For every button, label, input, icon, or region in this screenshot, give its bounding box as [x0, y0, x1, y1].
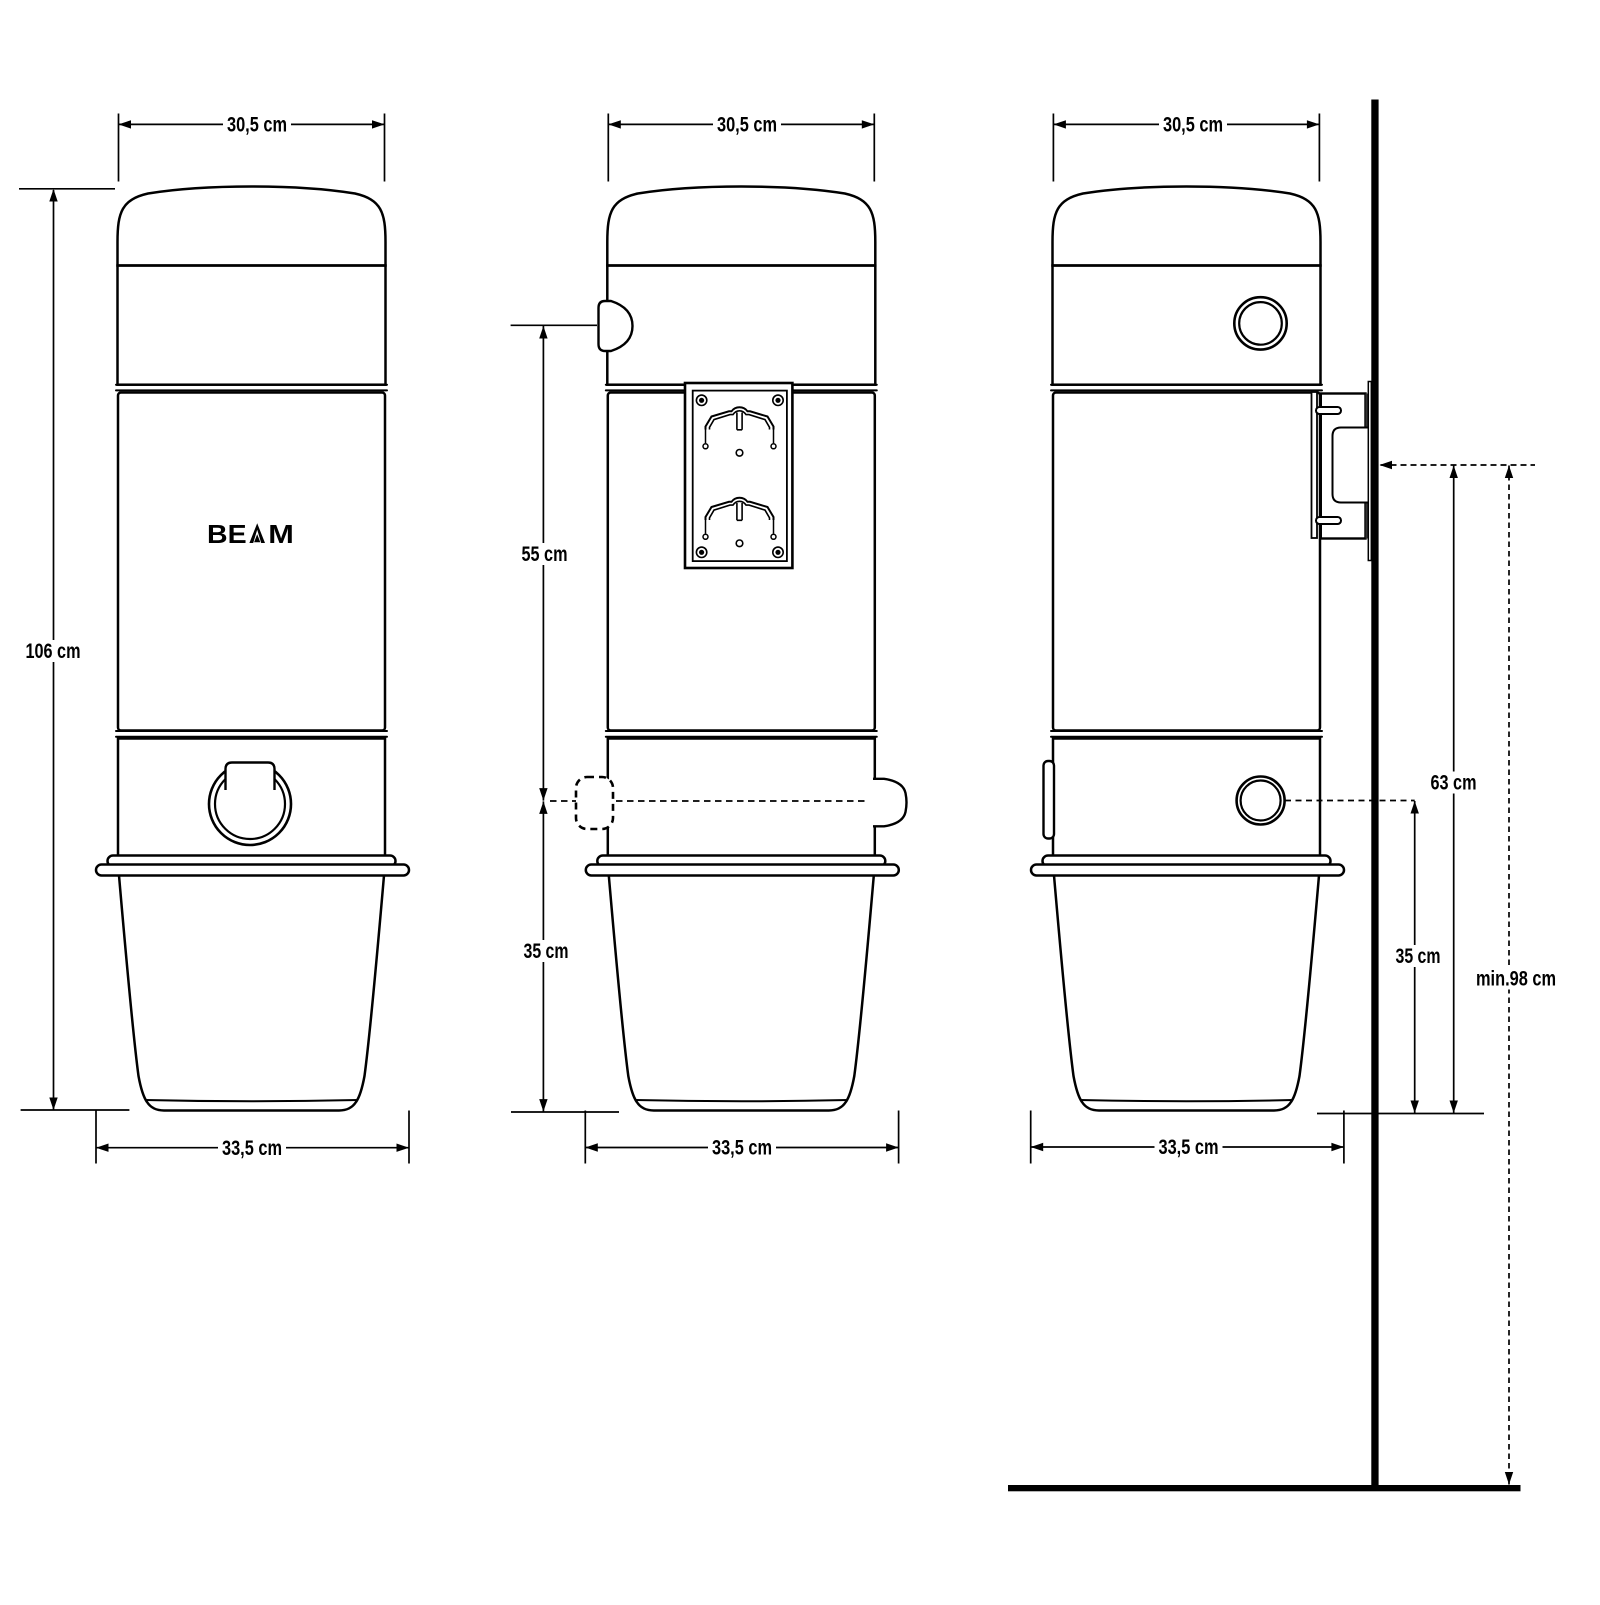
svg-text:33,5 cm: 33,5 cm: [222, 1137, 282, 1160]
svg-text:30,5 cm: 30,5 cm: [1163, 114, 1223, 137]
svg-text:55 cm: 55 cm: [522, 543, 568, 566]
svg-text:30,5 cm: 30,5 cm: [717, 114, 777, 137]
svg-text:M: M: [268, 519, 294, 549]
svg-text:35 cm: 35 cm: [524, 940, 569, 963]
svg-text:33,5 cm: 33,5 cm: [1159, 1136, 1219, 1159]
svg-text:63 cm: 63 cm: [1431, 772, 1477, 795]
svg-text:35 cm: 35 cm: [1396, 945, 1441, 968]
svg-text:106 cm: 106 cm: [26, 640, 81, 663]
svg-text:min.98 cm: min.98 cm: [1476, 968, 1556, 991]
svg-text:BE: BE: [207, 519, 247, 549]
svg-text:33,5 cm: 33,5 cm: [712, 1137, 772, 1160]
svg-text:30,5 cm: 30,5 cm: [227, 114, 287, 137]
